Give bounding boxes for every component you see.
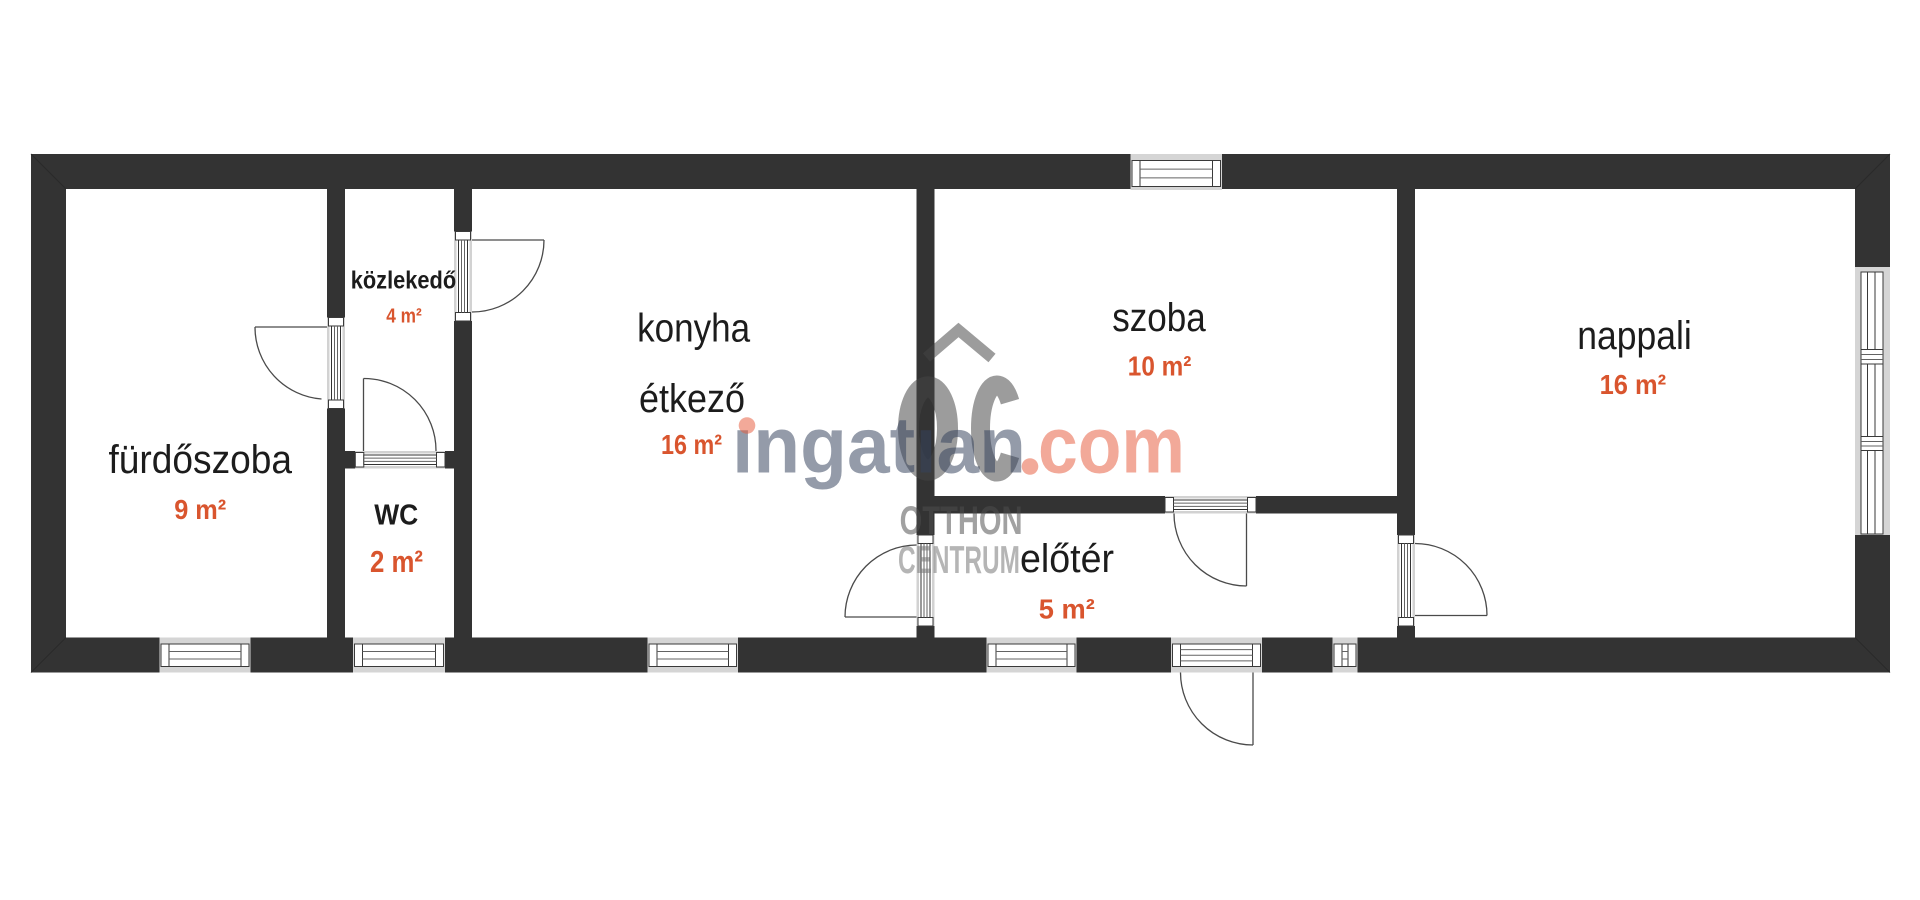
svg-text:16 m²: 16 m² <box>1600 369 1667 400</box>
svg-text:9 m²: 9 m² <box>174 494 226 525</box>
svg-text:szoba: szoba <box>1112 296 1206 340</box>
svg-text:OTTHON: OTTHON <box>900 499 1023 543</box>
svg-text:16 m²: 16 m² <box>661 429 722 460</box>
svg-text:com: com <box>1038 401 1185 490</box>
svg-text:ıngatıan: ıngatıan <box>732 401 1026 490</box>
svg-text:10 m²: 10 m² <box>1128 351 1192 382</box>
svg-text:fürdőszoba: fürdőszoba <box>109 438 293 482</box>
svg-text:CENTRUM: CENTRUM <box>898 539 1020 582</box>
svg-text:előtér: előtér <box>1020 537 1114 581</box>
svg-text:konyha: konyha <box>637 307 751 351</box>
svg-text:WC: WC <box>374 500 418 532</box>
svg-text:4 m²: 4 m² <box>386 306 422 328</box>
svg-text:étkező: étkező <box>639 377 745 421</box>
svg-text:5 m²: 5 m² <box>1039 594 1095 625</box>
svg-text:nappali: nappali <box>1577 314 1692 358</box>
svg-text:közlekedő: közlekedő <box>351 267 457 295</box>
svg-text:2 m²: 2 m² <box>370 544 423 579</box>
